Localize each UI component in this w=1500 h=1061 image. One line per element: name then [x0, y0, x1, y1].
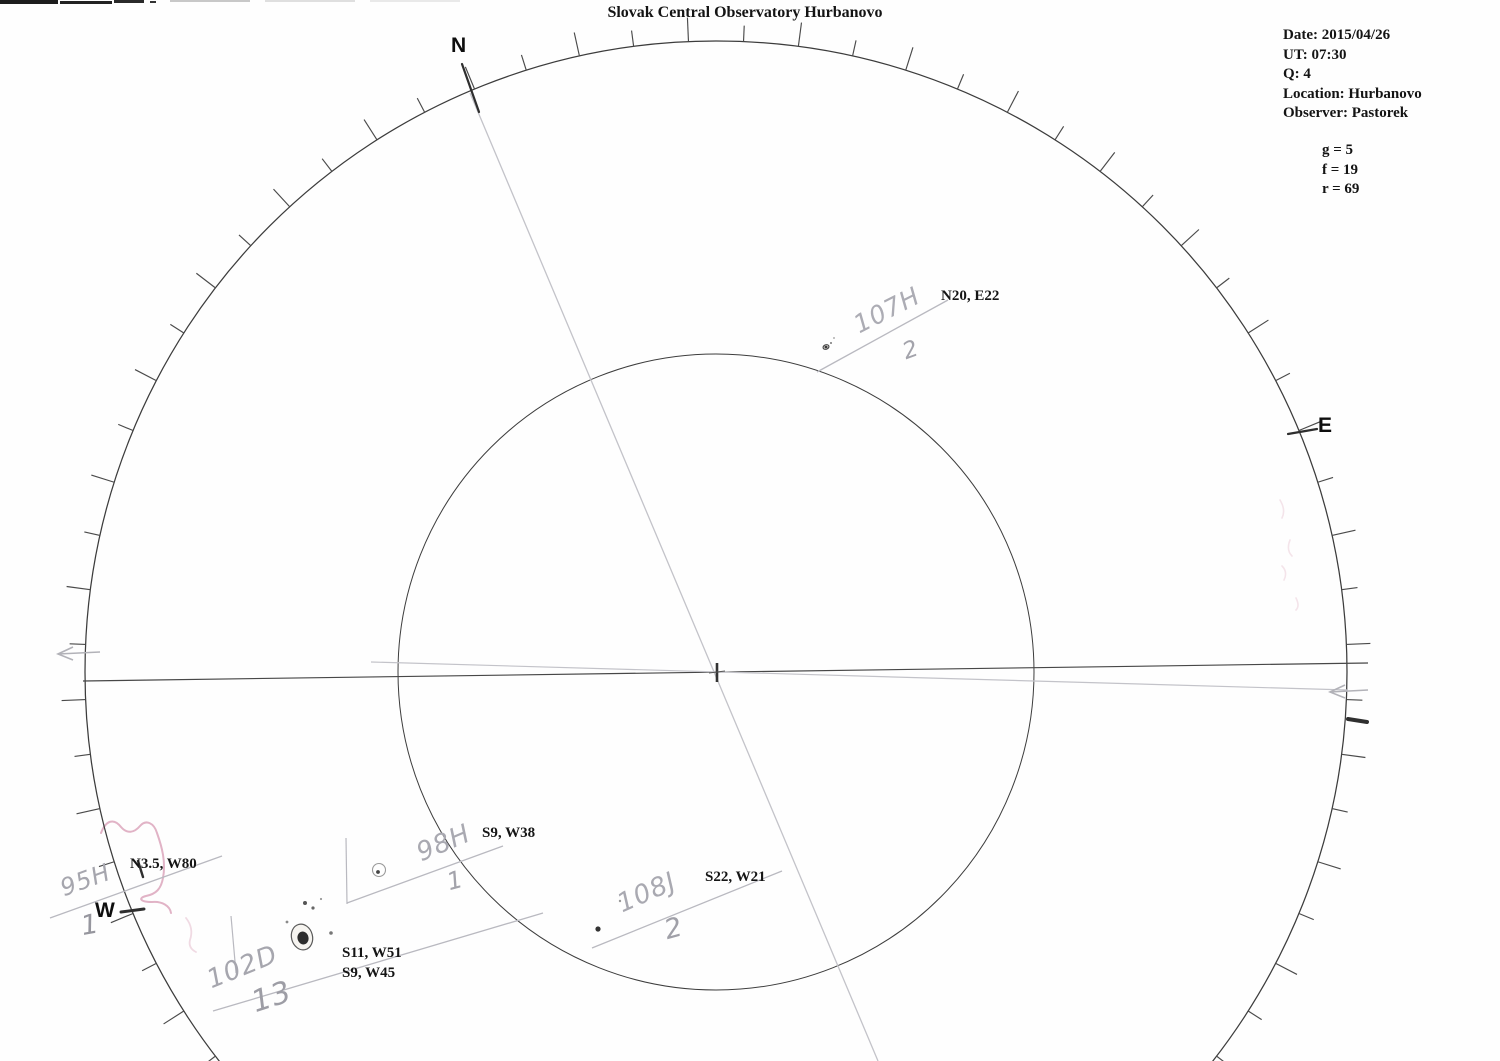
header-location: Location: Hurbanovo: [1283, 85, 1422, 105]
pink-pen-mark: [1280, 500, 1298, 610]
degree-tick: [1055, 126, 1064, 139]
cardinal-e-label: E: [1318, 414, 1332, 438]
degree-tick: [1346, 700, 1362, 701]
degree-tick: [364, 120, 377, 140]
degree-tick: [1346, 643, 1370, 644]
header-ut: UT: 07:30: [1283, 46, 1422, 66]
degree-tick: [521, 55, 526, 70]
degree-tick: [798, 23, 801, 47]
scan-artifact: [150, 1, 156, 3]
sunspot: [833, 337, 835, 339]
degree-tick: [322, 159, 332, 172]
cardinal-n-label: N: [451, 34, 466, 58]
scan-artifact: [114, 0, 144, 3]
solar-observation-sheet: Slovak Central Observatory Hurbanovo Dat…: [0, 0, 1500, 1061]
degree-tick: [1007, 91, 1018, 112]
degree-tick: [632, 31, 634, 47]
degree-tick: [1332, 809, 1348, 812]
degree-tick: [1248, 1011, 1261, 1020]
degree-tick: [62, 700, 86, 701]
sunspot: [376, 870, 380, 874]
degree-tick: [1217, 278, 1230, 288]
degree-tick: [273, 189, 289, 207]
degree-tick: [1342, 754, 1366, 757]
sunspot-counts: g = 5 f = 19 r = 69: [1322, 141, 1359, 200]
degree-tick: [70, 644, 86, 645]
cardinal-w-label: W: [95, 899, 115, 923]
page-title: Slovak Central Observatory Hurbanovo: [0, 4, 1490, 22]
degree-tick: [1276, 373, 1290, 380]
degree-tick: [853, 40, 856, 56]
degree-tick: [135, 370, 156, 381]
group-coordinate-label: N3.5, W80: [130, 856, 197, 873]
pink-pen-mark: [186, 918, 196, 952]
observation-header: Date: 2015/04/26 UT: 07:30 Q: 4 Location…: [1283, 26, 1422, 124]
group-coordinate-label: S22, W21: [705, 869, 766, 886]
count-relative-number: r = 69: [1322, 180, 1359, 200]
sunspot: [830, 342, 832, 344]
degree-tick: [91, 475, 114, 482]
scan-artifact: [170, 0, 250, 2]
limb-bold-tick: [1348, 719, 1367, 722]
drawn-equator-line: [371, 662, 1348, 690]
degree-tick: [574, 33, 579, 56]
sunspot: [320, 898, 322, 900]
degree-tick: [239, 235, 251, 246]
sunspot: [303, 901, 307, 905]
scan-artifact: [370, 0, 460, 2]
degree-tick: [170, 324, 183, 333]
sunspot: [329, 931, 333, 935]
degree-tick: [1100, 152, 1115, 171]
east-marker-tick: [1288, 429, 1317, 434]
degree-tick: [118, 424, 133, 430]
group-coordinate-label: S9, W38: [482, 825, 535, 842]
degree-tick: [1318, 477, 1333, 482]
degree-tick: [164, 1011, 184, 1024]
direction-arrow-shaft: [1330, 690, 1368, 692]
degree-tick: [417, 98, 424, 112]
count-spots: f = 19: [1322, 161, 1359, 181]
degree-tick: [196, 273, 215, 288]
sunspot: [286, 921, 289, 924]
degree-tick: [1217, 1056, 1236, 1061]
degree-tick: [203, 1056, 216, 1061]
degree-tick: [77, 809, 100, 814]
header-observer: Observer: Pastorek: [1283, 104, 1422, 124]
degree-tick: [744, 26, 745, 42]
count-groups: g = 5: [1322, 141, 1359, 161]
scan-artifact: [265, 0, 355, 2]
degree-tick: [957, 74, 963, 89]
degree-tick: [1318, 862, 1341, 869]
group-coordinate-label: N20, E22: [941, 288, 999, 305]
degree-tick: [1181, 229, 1199, 245]
west-marker-dash: [121, 909, 144, 912]
header-quality: Q: 4: [1283, 65, 1422, 85]
sunspot: [311, 906, 314, 909]
group-coordinate-label: S9, W45: [342, 965, 395, 982]
degree-tick: [906, 47, 913, 70]
degree-tick: [84, 532, 100, 535]
direction-arrow-shaft: [58, 652, 100, 654]
degree-tick: [1342, 588, 1358, 590]
degree-tick: [1248, 320, 1268, 333]
header-date: Date: 2015/04/26: [1283, 26, 1422, 46]
degree-tick: [1299, 913, 1314, 919]
degree-tick: [67, 587, 91, 590]
degree-tick: [1142, 195, 1153, 207]
degree-tick: [75, 754, 91, 756]
sunspot: [595, 926, 600, 931]
degree-tick: [1276, 963, 1297, 974]
degree-tick: [142, 963, 156, 970]
group-coordinate-label: S11, W51: [342, 945, 402, 962]
degree-tick: [1332, 530, 1355, 535]
solar-limb-circle: [85, 41, 1347, 1061]
group-bracket-line: [346, 838, 347, 904]
solar-disk-drawing: [0, 0, 1500, 1061]
sunspot-penumbra: [373, 864, 386, 877]
